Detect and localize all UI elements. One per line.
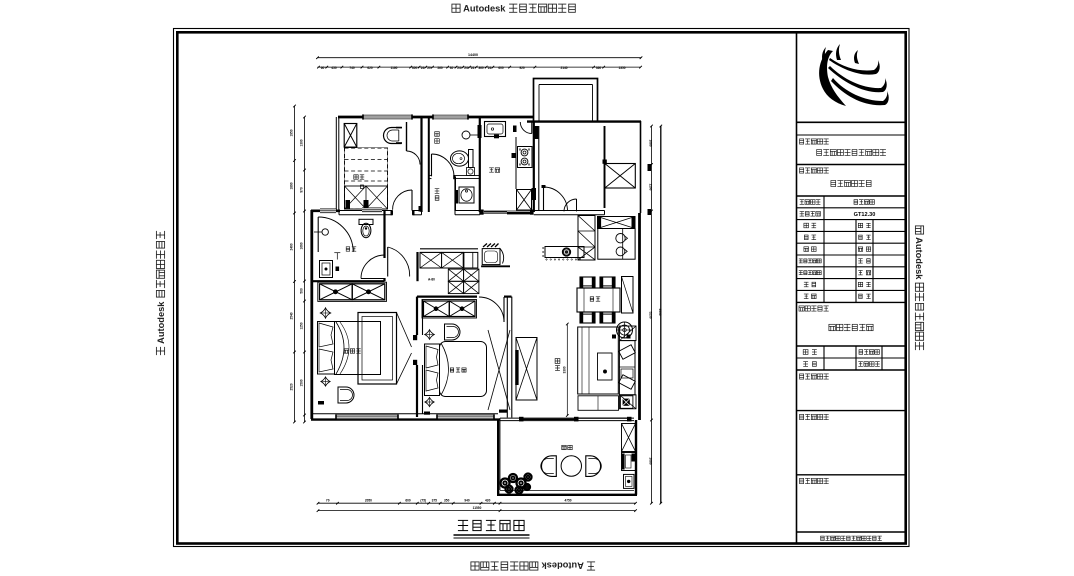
svg-text:Autodesk: Autodesk <box>914 237 924 280</box>
svg-text:350: 350 <box>444 498 450 502</box>
svg-text:24: 24 <box>457 66 461 70</box>
svg-text:Autodesk: Autodesk <box>541 561 584 571</box>
svg-text:1890: 1890 <box>290 182 294 189</box>
svg-text:2460: 2460 <box>290 243 294 250</box>
svg-text:A-80: A-80 <box>428 278 435 282</box>
svg-text:1160: 1160 <box>391 66 398 70</box>
svg-text:24: 24 <box>488 66 492 70</box>
svg-text:2520: 2520 <box>290 383 294 390</box>
svg-text:1350: 1350 <box>618 66 625 70</box>
svg-text:360: 360 <box>478 66 484 70</box>
svg-text:(75): (75) <box>420 498 426 502</box>
svg-text:740: 740 <box>349 66 355 70</box>
svg-text:9530: 9530 <box>658 308 662 315</box>
svg-text:3300: 3300 <box>563 366 567 373</box>
svg-text:1500: 1500 <box>300 379 304 386</box>
svg-text:24: 24 <box>464 66 468 70</box>
svg-text:600: 600 <box>498 66 504 70</box>
svg-text:5230: 5230 <box>649 311 653 318</box>
svg-text:300: 300 <box>412 66 418 70</box>
svg-text:2540: 2540 <box>290 312 294 319</box>
svg-text:4750: 4750 <box>564 498 571 502</box>
svg-text:600: 600 <box>405 498 411 502</box>
svg-text:920: 920 <box>519 66 525 70</box>
svg-text:14400: 14400 <box>468 53 478 57</box>
svg-text:375: 375 <box>432 498 438 502</box>
svg-text:11550: 11550 <box>473 506 482 510</box>
svg-text:60: 60 <box>321 66 325 70</box>
svg-text:1660: 1660 <box>300 242 304 249</box>
svg-text:30: 30 <box>450 66 454 70</box>
svg-text:620: 620 <box>367 66 373 70</box>
svg-text:20: 20 <box>427 66 431 70</box>
svg-text:2080: 2080 <box>649 457 653 464</box>
svg-text:430: 430 <box>485 498 491 502</box>
svg-text:360: 360 <box>596 66 602 70</box>
svg-text:Autodesk: Autodesk <box>156 301 166 344</box>
svg-text:500: 500 <box>300 288 304 294</box>
svg-text:1300: 1300 <box>300 139 304 146</box>
svg-text:Autodesk: Autodesk <box>463 4 506 14</box>
svg-text:560: 560 <box>437 66 443 70</box>
svg-text:1160: 1160 <box>649 184 653 191</box>
svg-text:GT12.30: GT12.30 <box>854 212 876 218</box>
svg-text:1950: 1950 <box>290 129 294 136</box>
svg-text:450: 450 <box>331 66 337 70</box>
svg-text:2140: 2140 <box>560 66 567 70</box>
svg-text:970: 970 <box>300 187 304 193</box>
svg-text:2050: 2050 <box>365 498 372 502</box>
svg-text:24: 24 <box>421 66 425 70</box>
svg-text:70: 70 <box>326 498 330 502</box>
svg-text:940: 940 <box>464 498 470 502</box>
svg-text:1080: 1080 <box>649 139 653 146</box>
svg-text:1250: 1250 <box>300 322 304 329</box>
svg-text:24: 24 <box>471 66 475 70</box>
